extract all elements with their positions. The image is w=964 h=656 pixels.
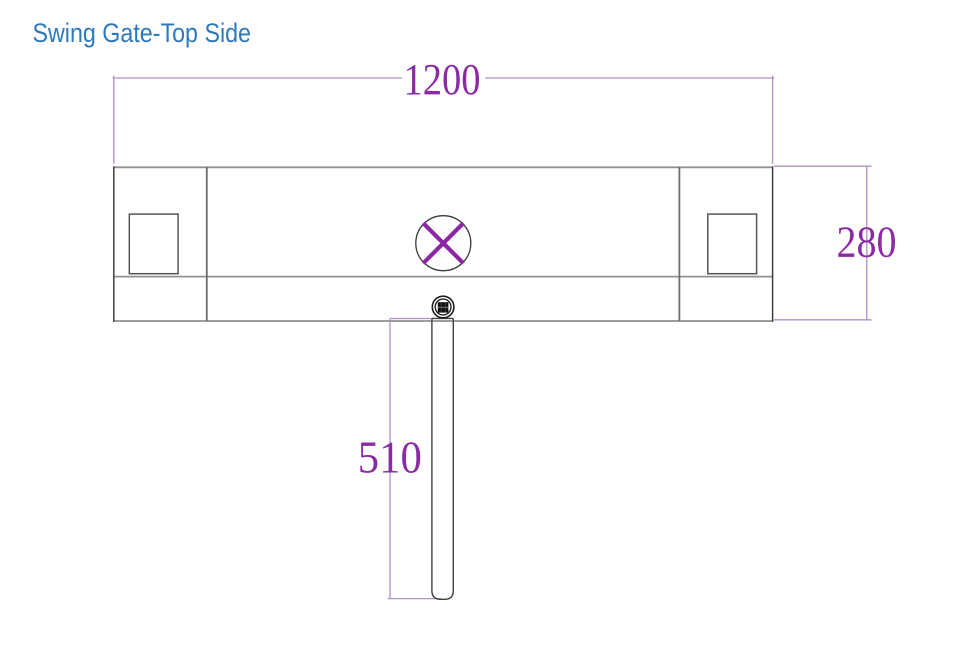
svg-text:Swing Gate-Top Side: Swing Gate-Top Side <box>33 18 252 48</box>
svg-text:1200: 1200 <box>404 54 481 104</box>
svg-text:280: 280 <box>837 218 897 267</box>
svg-text:510: 510 <box>358 433 422 483</box>
